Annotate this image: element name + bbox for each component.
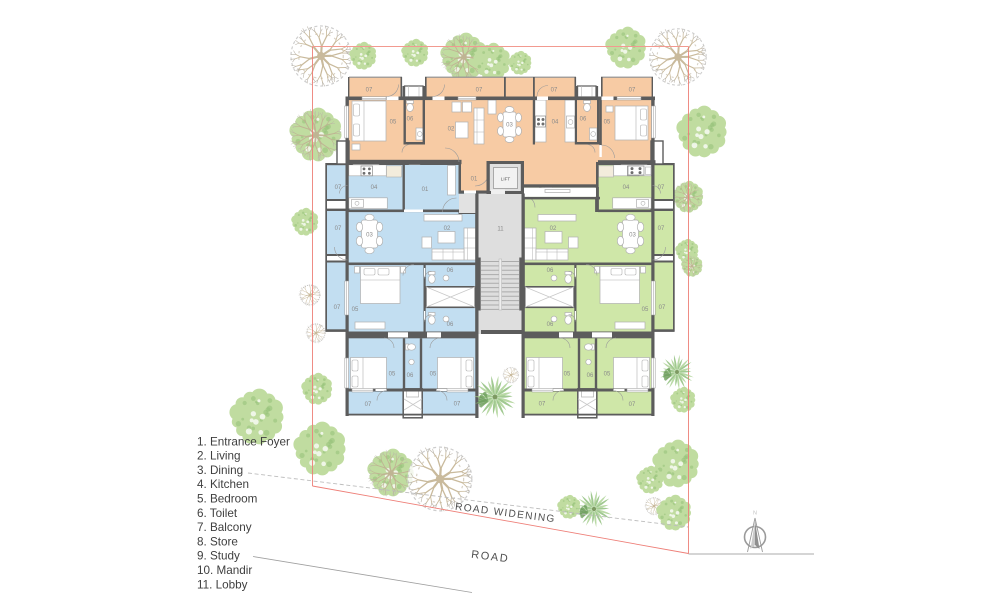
svg-text:07: 07 (539, 402, 546, 408)
svg-text:LIFT: LIFT (501, 177, 511, 182)
svg-text:2. Living: 2. Living (197, 450, 241, 463)
svg-text:01: 01 (422, 187, 429, 193)
svg-text:9. Study: 9. Study (197, 550, 240, 563)
svg-text:4. Kitchen: 4. Kitchen (197, 478, 249, 491)
svg-text:07: 07 (365, 402, 372, 408)
svg-text:07: 07 (476, 88, 483, 94)
svg-text:06: 06 (580, 117, 587, 123)
svg-text:6. Toilet: 6. Toilet (197, 507, 238, 520)
svg-text:ROAD: ROAD (471, 549, 510, 566)
svg-text:1. Entrance Foyer: 1. Entrance Foyer (197, 435, 290, 448)
svg-text:05: 05 (352, 307, 359, 313)
svg-text:11: 11 (497, 227, 504, 233)
svg-text:ROAD WIDENING: ROAD WIDENING (454, 502, 556, 526)
svg-text:07: 07 (366, 88, 373, 94)
svg-text:N: N (753, 511, 757, 517)
svg-text:03: 03 (366, 233, 373, 239)
svg-text:07: 07 (334, 305, 341, 311)
svg-text:07: 07 (629, 402, 636, 408)
svg-text:02: 02 (550, 226, 557, 232)
svg-text:05: 05 (389, 372, 396, 378)
svg-text:05: 05 (604, 372, 611, 378)
svg-text:11. Lobby: 11. Lobby (197, 578, 248, 591)
svg-text:03: 03 (629, 233, 636, 239)
svg-text:07: 07 (454, 402, 461, 408)
svg-text:06: 06 (547, 268, 554, 274)
svg-text:06: 06 (447, 268, 454, 274)
svg-text:05: 05 (390, 120, 397, 126)
svg-text:07: 07 (335, 226, 342, 232)
svg-text:07: 07 (659, 305, 666, 311)
svg-text:02: 02 (448, 127, 455, 133)
svg-text:05: 05 (642, 307, 649, 313)
svg-text:10. Mandir: 10. Mandir (197, 564, 252, 577)
svg-text:07: 07 (629, 88, 636, 94)
svg-text:01: 01 (471, 177, 478, 183)
svg-text:04: 04 (623, 185, 630, 191)
svg-text:03: 03 (506, 123, 513, 129)
svg-text:06: 06 (407, 373, 414, 379)
svg-text:07: 07 (551, 88, 558, 94)
svg-text:05: 05 (430, 372, 437, 378)
svg-text:07: 07 (658, 226, 665, 232)
svg-text:04: 04 (552, 120, 559, 126)
svg-text:7. Balcony: 7. Balcony (197, 521, 252, 534)
svg-text:05: 05 (604, 120, 611, 126)
svg-text:05: 05 (564, 372, 571, 378)
svg-text:07: 07 (335, 185, 342, 191)
svg-text:06: 06 (547, 322, 554, 328)
svg-text:07: 07 (658, 185, 665, 191)
svg-text:3. Dining: 3. Dining (197, 464, 243, 477)
svg-text:06: 06 (447, 322, 454, 328)
svg-text:02: 02 (444, 226, 451, 232)
svg-text:04: 04 (371, 185, 378, 191)
svg-text:06: 06 (407, 117, 414, 123)
svg-text:5. Bedroom: 5. Bedroom (197, 493, 257, 506)
svg-text:8. Store: 8. Store (197, 535, 238, 548)
svg-text:06: 06 (587, 373, 594, 379)
